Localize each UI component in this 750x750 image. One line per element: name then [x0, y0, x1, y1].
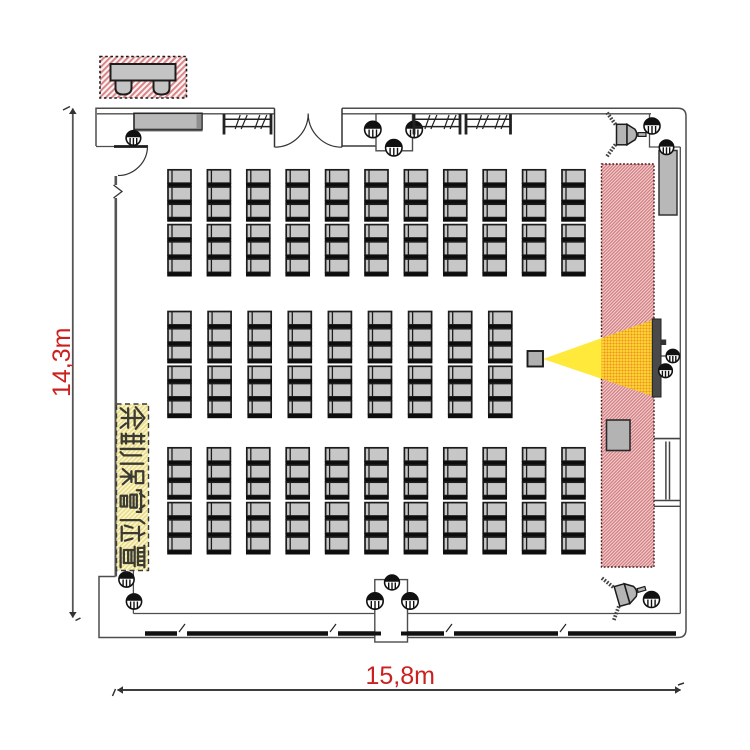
svg-text:14,3m: 14,3m: [48, 328, 76, 397]
svg-text:15,8m: 15,8m: [366, 662, 435, 690]
